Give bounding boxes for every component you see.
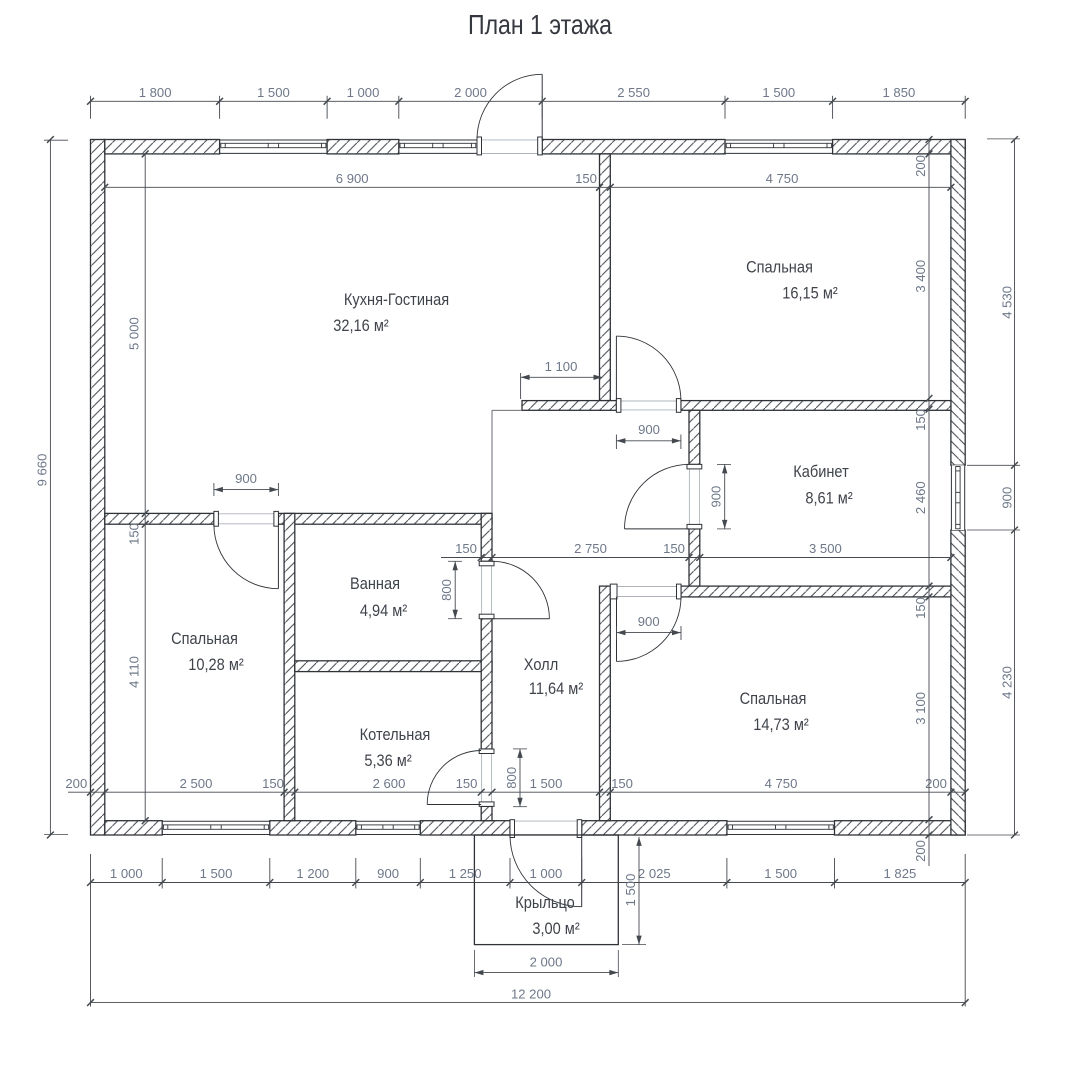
svg-text:1 500: 1 500 — [762, 85, 795, 100]
svg-text:900: 900 — [235, 471, 257, 486]
svg-text:Кухня-Гостиная: Кухня-Гостиная — [344, 291, 449, 309]
svg-text:2 000: 2 000 — [454, 85, 487, 100]
svg-text:4 750: 4 750 — [765, 776, 798, 791]
svg-text:Ванная: Ванная — [350, 575, 400, 593]
svg-text:1 250: 1 250 — [449, 866, 482, 881]
svg-text:1 100: 1 100 — [545, 359, 578, 374]
svg-text:150: 150 — [127, 523, 142, 545]
svg-text:3,00 м²: 3,00 м² — [532, 920, 579, 938]
svg-text:12 200: 12 200 — [511, 986, 551, 1001]
svg-text:2 000: 2 000 — [530, 954, 563, 969]
svg-text:3 400: 3 400 — [913, 260, 928, 293]
svg-text:200: 200 — [913, 840, 928, 862]
svg-text:800: 800 — [439, 579, 454, 601]
svg-text:14,73 м²: 14,73 м² — [753, 716, 808, 734]
svg-text:5,36 м²: 5,36 м² — [364, 752, 411, 770]
svg-text:11,64 м²: 11,64 м² — [529, 680, 583, 698]
svg-text:2 500: 2 500 — [180, 776, 213, 791]
svg-text:1 000: 1 000 — [110, 866, 143, 881]
svg-text:1 200: 1 200 — [296, 866, 329, 881]
svg-text:150: 150 — [262, 776, 284, 791]
svg-text:150: 150 — [611, 776, 633, 791]
svg-text:200: 200 — [65, 776, 87, 791]
svg-text:2 550: 2 550 — [617, 85, 650, 100]
svg-text:150: 150 — [913, 409, 928, 431]
svg-text:Спальная: Спальная — [171, 630, 238, 648]
svg-text:Холл: Холл — [524, 656, 558, 674]
svg-text:150: 150 — [456, 776, 478, 791]
svg-text:900: 900 — [1000, 487, 1015, 509]
svg-text:Кабинет: Кабинет — [793, 463, 849, 481]
svg-text:1 500: 1 500 — [530, 776, 563, 791]
svg-text:4 110: 4 110 — [127, 656, 142, 688]
svg-text:1 000: 1 000 — [530, 866, 563, 881]
svg-text:4,94 м²: 4,94 м² — [360, 602, 407, 620]
svg-text:2 460: 2 460 — [913, 481, 928, 514]
svg-text:200: 200 — [913, 155, 928, 177]
svg-text:4 750: 4 750 — [766, 171, 799, 186]
svg-text:150: 150 — [913, 597, 928, 619]
svg-text:8,61 м²: 8,61 м² — [805, 490, 852, 508]
svg-text:900: 900 — [638, 422, 660, 437]
svg-text:150: 150 — [575, 171, 597, 186]
svg-text:1 500: 1 500 — [764, 866, 797, 881]
svg-text:150: 150 — [663, 541, 685, 556]
svg-text:1 000: 1 000 — [347, 85, 380, 100]
svg-text:1 850: 1 850 — [883, 85, 916, 100]
svg-text:2 600: 2 600 — [373, 776, 406, 791]
svg-text:800: 800 — [504, 767, 519, 789]
svg-text:3 500: 3 500 — [809, 541, 842, 556]
svg-text:Спальная: Спальная — [746, 259, 813, 277]
svg-text:1 500: 1 500 — [257, 85, 290, 100]
svg-text:5 000: 5 000 — [127, 317, 142, 350]
svg-text:1 500: 1 500 — [623, 874, 638, 907]
svg-text:План 1 этажа: План 1 этажа — [468, 10, 613, 40]
svg-text:1 800: 1 800 — [139, 85, 172, 100]
svg-text:6 900: 6 900 — [336, 171, 369, 186]
svg-text:32,16 м²: 32,16 м² — [333, 317, 388, 335]
svg-text:16,15 м²: 16,15 м² — [782, 285, 837, 303]
svg-text:2 750: 2 750 — [574, 541, 607, 556]
svg-text:900: 900 — [377, 866, 399, 881]
svg-text:900: 900 — [709, 486, 724, 508]
svg-text:10,28 м²: 10,28 м² — [188, 656, 243, 674]
svg-text:1 500: 1 500 — [200, 866, 233, 881]
svg-text:4 530: 4 530 — [1000, 286, 1015, 319]
svg-text:2 025: 2 025 — [638, 866, 671, 881]
svg-text:200: 200 — [925, 776, 947, 791]
svg-text:900: 900 — [638, 614, 660, 629]
svg-text:Крыльцо: Крыльцо — [515, 894, 575, 912]
svg-text:Котельная: Котельная — [360, 726, 431, 744]
svg-text:3 100: 3 100 — [913, 692, 928, 725]
svg-text:1 825: 1 825 — [884, 866, 917, 881]
svg-text:4 230: 4 230 — [1000, 666, 1015, 699]
svg-text:9 660: 9 660 — [35, 454, 50, 487]
svg-text:Спальная: Спальная — [740, 690, 807, 708]
svg-text:150: 150 — [455, 541, 477, 556]
